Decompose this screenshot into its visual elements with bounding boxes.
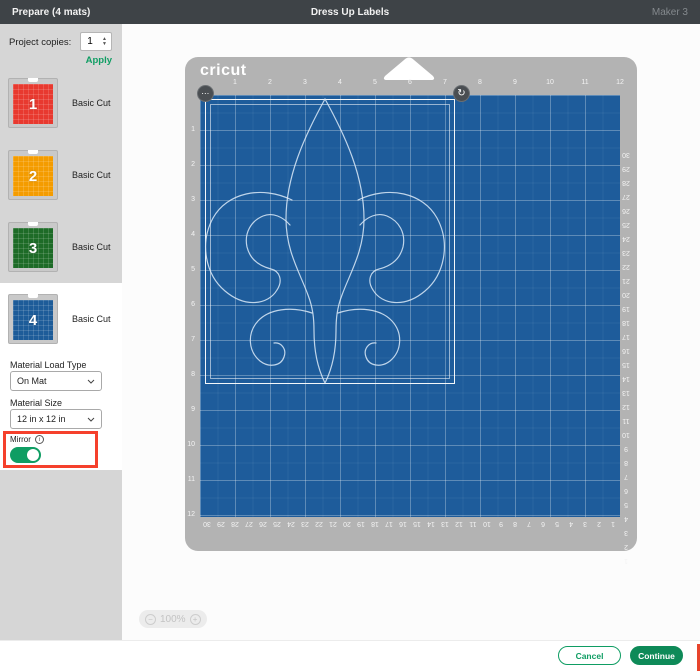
mat-number: 4 — [29, 312, 37, 329]
ruler-number: 12 — [455, 520, 463, 527]
ruler-number: 28 — [622, 179, 630, 186]
cutting-mat: cricut ⋯ ↻ 1234567891011121234567 — [185, 57, 637, 551]
project-title: Dress Up Labels — [0, 7, 700, 18]
ruler-number: 3 — [185, 196, 195, 203]
ruler-number: 8 — [513, 520, 517, 527]
ruler-number: 7 — [527, 520, 531, 527]
mat-settings-panel: Material Load Type On Mat Material Size … — [0, 355, 122, 470]
ruler-number: 13 — [622, 389, 630, 396]
mat-row-2[interactable]: 2Basic Cut — [0, 139, 122, 211]
ruler-number: 15 — [622, 361, 630, 368]
material-load-type-label: Material Load Type — [10, 360, 86, 370]
zoom-control: − 100% + — [139, 610, 207, 628]
ruler-number: 30 — [622, 151, 630, 158]
ruler-number: 9 — [499, 520, 503, 527]
mat-row-3[interactable]: 3Basic Cut — [0, 211, 122, 283]
footer-bar: Cancel Continue — [0, 640, 700, 670]
mat-list: 1Basic Cut2Basic Cut3Basic Cut4Basic Cut — [0, 67, 122, 355]
ruler-number: 9 — [513, 79, 517, 86]
ruler-number: 10 — [622, 431, 630, 438]
stepper-arrows[interactable]: ▲ ▼ — [99, 33, 110, 50]
material-load-type-select[interactable]: On Mat — [10, 371, 102, 391]
project-copies-label: Project copies: — [9, 37, 71, 48]
project-copies-input[interactable] — [81, 33, 99, 50]
ruler-number: 23 — [622, 249, 630, 256]
ruler-number: 3 — [303, 79, 307, 86]
ruler-number: 10 — [546, 79, 554, 86]
ruler-number: 27 — [245, 520, 253, 527]
ruler-number: 14 — [622, 375, 630, 382]
ruler-number: 22 — [622, 263, 630, 270]
ruler-number: 8 — [478, 79, 482, 86]
mat-thumb-notch — [28, 294, 38, 298]
mirror-toggle[interactable] — [10, 447, 41, 463]
material-size-label: Material Size — [10, 398, 62, 408]
ruler-number: 11 — [185, 476, 195, 483]
chevron-down-icon — [87, 417, 95, 422]
ruler-number: 9 — [624, 445, 628, 452]
mat-number: 1 — [29, 96, 37, 113]
zoom-in-button[interactable]: + — [190, 614, 201, 625]
ruler-number: 14 — [427, 520, 435, 527]
mat-thumb-notch — [28, 150, 38, 154]
ruler-number: 4 — [185, 231, 195, 238]
ruler-number: 22 — [315, 520, 323, 527]
ruler-number: 11 — [622, 417, 629, 424]
ruler-number: 10 — [185, 441, 195, 448]
ruler-number: 1 — [233, 79, 237, 86]
ruler-number: 4 — [569, 520, 573, 527]
machine-name: Maker 3 — [652, 7, 688, 18]
ruler-number: 3 — [583, 520, 587, 527]
mirror-label: Mirror — [10, 435, 31, 444]
ruler-number: 2 — [624, 543, 628, 550]
ruler-number: 11 — [581, 79, 588, 86]
ruler-number: 9 — [185, 406, 195, 413]
mat-cut-type: Basic Cut — [72, 242, 111, 252]
ruler-number: 1 — [185, 126, 195, 133]
ruler-number: 29 — [217, 520, 225, 527]
sidebar: Project copies: ▲ ▼ Apply 1Basic Cut2Bas… — [0, 24, 122, 640]
ruler-number: 17 — [622, 333, 630, 340]
ruler-number: 19 — [622, 305, 630, 312]
project-copies-section: Project copies: ▲ ▼ Apply — [0, 24, 122, 67]
ruler-number: 11 — [469, 520, 476, 527]
ruler-number: 28 — [231, 520, 239, 527]
project-copies-stepper[interactable]: ▲ ▼ — [80, 32, 112, 51]
material-size-value: 12 in x 12 in — [17, 414, 87, 424]
rotate-icon: ↻ — [457, 88, 465, 99]
ruler-number: 23 — [301, 520, 309, 527]
ruler-number: 17 — [385, 520, 393, 527]
ruler-number: 5 — [555, 520, 559, 527]
chevron-down-icon — [87, 379, 95, 384]
ruler-number: 5 — [373, 79, 377, 86]
fleur-de-lis-shape[interactable] — [203, 97, 447, 387]
material-size-select[interactable]: 12 in x 12 in — [10, 409, 102, 429]
ruler-number: 18 — [371, 520, 379, 527]
ruler-number: 15 — [413, 520, 421, 527]
ruler-number: 25 — [273, 520, 281, 527]
ruler-number: 3 — [624, 529, 628, 536]
ruler-number: 26 — [259, 520, 267, 527]
ellipsis-icon: ⋯ — [201, 89, 210, 98]
ruler-number: 7 — [624, 473, 628, 480]
ruler-number: 16 — [399, 520, 407, 527]
mirror-highlight-annotation: Mirror i — [3, 431, 98, 468]
ruler-number: 4 — [338, 79, 342, 86]
mat-thumb-notch — [28, 222, 38, 226]
mat-number: 3 — [29, 240, 37, 257]
material-grid — [200, 95, 620, 517]
material-load-type-value: On Mat — [17, 376, 87, 386]
ruler-number: 20 — [343, 520, 351, 527]
ruler-number: 21 — [622, 277, 630, 284]
ruler-number: 8 — [624, 459, 628, 466]
ruler-number: 1 — [624, 557, 628, 564]
mat-row-1[interactable]: 1Basic Cut — [0, 67, 122, 139]
zoom-level: 100% — [160, 614, 186, 625]
mat-thumbnail[interactable]: 1 — [8, 78, 58, 128]
ruler-number: 13 — [441, 520, 449, 527]
rotate-handle[interactable]: ↻ — [453, 85, 470, 102]
mat-cut-type: Basic Cut — [72, 170, 111, 180]
mat-thumb-notch — [28, 78, 38, 82]
ruler-number: 4 — [624, 515, 628, 522]
ruler-number: 18 — [622, 319, 630, 326]
continue-button[interactable]: Continue — [630, 646, 683, 665]
ruler-number: 7 — [443, 79, 447, 86]
stepper-down-icon[interactable]: ▼ — [102, 42, 107, 47]
ruler-number: 16 — [622, 347, 630, 354]
zoom-out-button[interactable]: − — [145, 614, 156, 625]
info-icon[interactable]: i — [35, 435, 44, 444]
ruler-number: 1 — [611, 520, 615, 527]
ruler-number: 8 — [185, 371, 195, 378]
ruler-number: 2 — [597, 520, 601, 527]
ruler-number: 5 — [185, 266, 195, 273]
mirror-toggle-knob — [27, 449, 39, 461]
ruler-number: 7 — [185, 336, 195, 343]
mat-preview-canvas: cricut ⋯ ↻ 1234567891011121234567 — [122, 24, 700, 640]
ruler-number: 6 — [541, 520, 545, 527]
ruler-number: 12 — [616, 79, 624, 86]
ruler-number: 6 — [624, 487, 628, 494]
ruler-number: 30 — [203, 520, 211, 527]
mirror-header: Mirror i — [10, 435, 44, 444]
ruler-number: 10 — [483, 520, 491, 527]
ruler-number: 20 — [622, 291, 630, 298]
mat-cut-type: Basic Cut — [72, 314, 111, 324]
apply-link[interactable]: Apply — [86, 55, 112, 66]
mat-number: 2 — [29, 168, 37, 185]
mat-row-4[interactable]: 4Basic Cut — [0, 283, 122, 355]
plus-icon: + — [193, 615, 198, 624]
ruler-number: 2 — [268, 79, 272, 86]
ruler-number: 12 — [185, 511, 195, 518]
cancel-button[interactable]: Cancel — [558, 646, 621, 665]
ruler-number: 21 — [329, 520, 337, 527]
ruler-number: 26 — [622, 207, 630, 214]
ruler-number: 24 — [622, 235, 630, 242]
selection-menu-handle[interactable]: ⋯ — [197, 85, 214, 102]
ruler-number: 6 — [185, 301, 195, 308]
mat-thumbnail[interactable]: 2 — [8, 150, 58, 200]
cricut-logo: cricut — [200, 62, 247, 80]
ruler-number: 5 — [624, 501, 628, 508]
mat-arrow-notch — [381, 57, 437, 80]
mat-thumbnail[interactable]: 3 — [8, 222, 58, 272]
ruler-number: 25 — [622, 221, 630, 228]
ruler-number: 24 — [287, 520, 295, 527]
top-bar: Prepare (4 mats) Dress Up Labels Maker 3 — [0, 0, 700, 24]
minus-icon: − — [148, 615, 153, 624]
ruler-number: 12 — [622, 403, 630, 410]
ruler-number: 29 — [622, 165, 630, 172]
ruler-number: 6 — [408, 79, 412, 86]
ruler-number: 19 — [357, 520, 365, 527]
ruler-number: 27 — [622, 193, 630, 200]
ruler-number: 2 — [185, 161, 195, 168]
mat-thumbnail[interactable]: 4 — [8, 294, 58, 344]
mat-cut-type: Basic Cut — [72, 98, 111, 108]
